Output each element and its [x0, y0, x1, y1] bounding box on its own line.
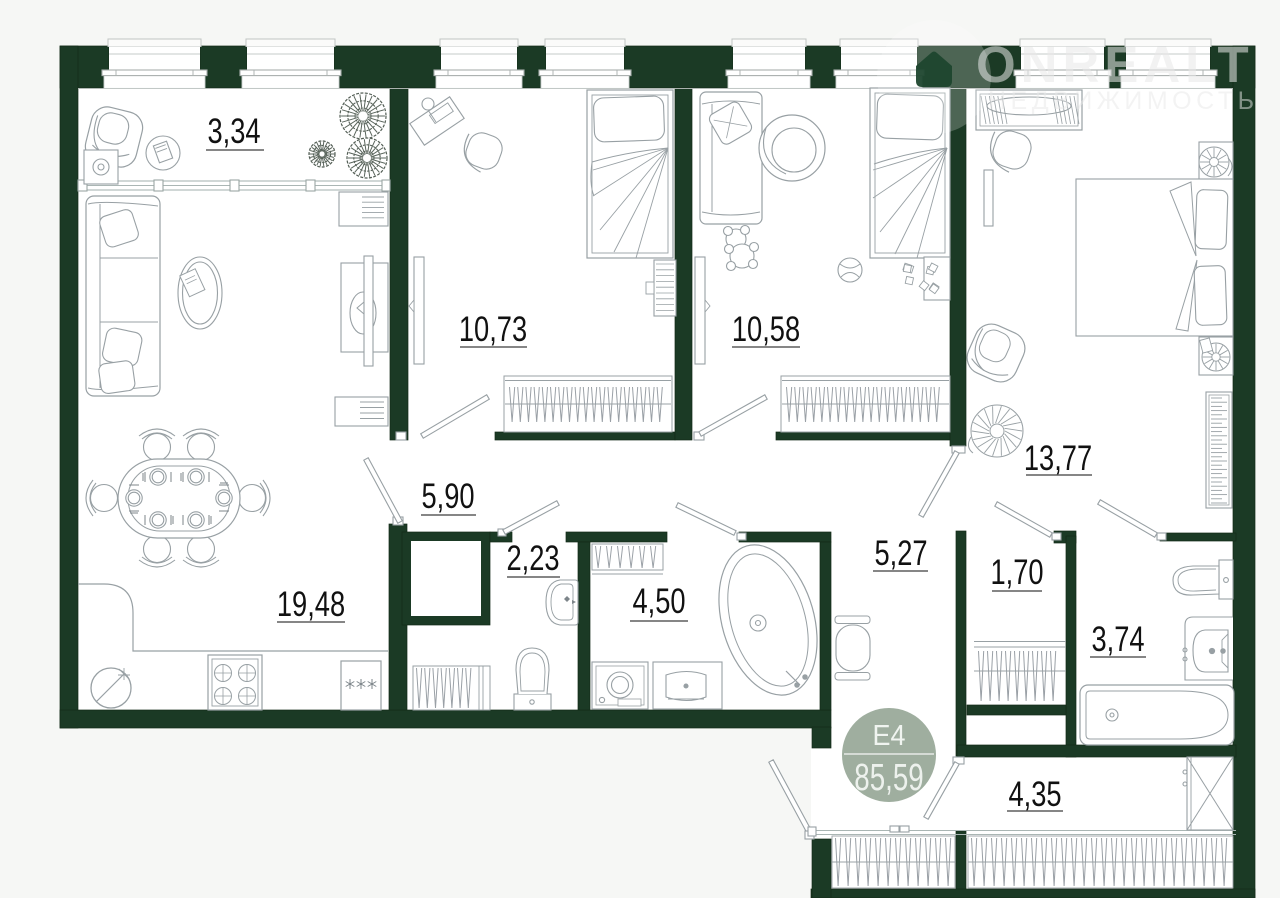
svg-text:НЕДВИЖИМОСТЬ: НЕДВИЖИМОСТЬ: [988, 87, 1259, 115]
svg-text:10,73: 10,73: [459, 310, 527, 349]
svg-text:2,23: 2,23: [506, 539, 559, 578]
svg-text:10,58: 10,58: [732, 310, 800, 349]
svg-text:E4: E4: [873, 719, 906, 751]
svg-text:ONREALT: ONREALT: [976, 36, 1254, 93]
svg-text:85,59: 85,59: [854, 757, 923, 799]
svg-text:19,48: 19,48: [277, 585, 345, 624]
svg-text:4,35: 4,35: [1008, 775, 1061, 814]
svg-text:1,70: 1,70: [990, 553, 1043, 592]
svg-text:3,74: 3,74: [1091, 620, 1144, 659]
svg-text:5,90: 5,90: [421, 477, 474, 516]
svg-text:3,34: 3,34: [207, 112, 260, 151]
svg-text:4,50: 4,50: [632, 582, 685, 621]
svg-text:13,77: 13,77: [1024, 439, 1092, 478]
svg-text:5,27: 5,27: [874, 534, 927, 573]
